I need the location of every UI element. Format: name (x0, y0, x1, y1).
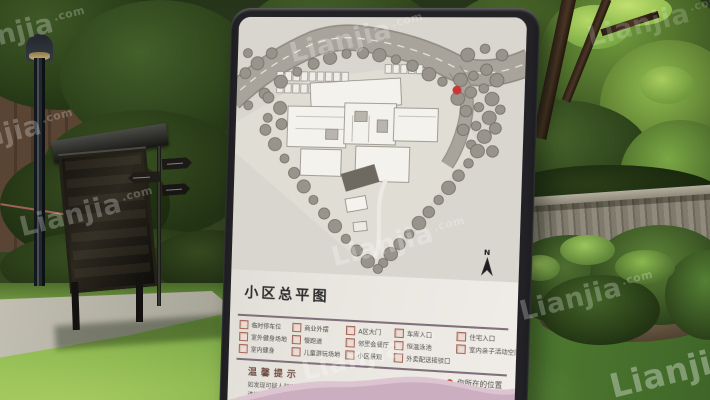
legend-swatch-icon (292, 323, 301, 333)
legend-item: 室内亲子活动空间 (456, 344, 521, 357)
legend-swatch-icon (239, 332, 248, 342)
legend-column: A区大门 邻里会餐厅 小区景观 (345, 326, 389, 362)
legend-item: 室外健身场地 (239, 332, 287, 344)
site-plan-map (231, 17, 527, 283)
legend-swatch-icon (394, 341, 404, 351)
legend-swatch-icon (456, 332, 466, 342)
legend-swatch-icon (394, 328, 404, 338)
signpost-pole (157, 146, 161, 306)
notice-board-leg (136, 276, 143, 322)
legend-item: 住宅入口 (456, 332, 521, 345)
legend-label: 恒温泳池 (407, 341, 432, 352)
legend-column: 住宅入口 室内亲子活动空间 (456, 332, 522, 370)
legend-label: 室内健身 (251, 345, 275, 355)
legend-label: 儿童游玩场地 (303, 348, 340, 359)
legend-label: 外卖配送接驳口 (406, 354, 451, 366)
legend-label: 临时停车位 (251, 320, 281, 331)
legend-swatch-icon (239, 320, 248, 330)
legend-label: 邻里会餐厅 (358, 339, 389, 350)
legend-item: 外卖配送接驳口 (394, 353, 451, 366)
legend-swatch-icon (346, 338, 356, 348)
legend-label: 车库入口 (407, 329, 432, 340)
sign-title: 小区总平图 (244, 282, 330, 306)
legend-item: 儿童游玩场地 (291, 347, 340, 359)
legend-column: 临时停车位 室外健身场地 室内健身 (239, 320, 288, 356)
signboard-face: 小区总平图 N 临时停车位 室外健身场地 室内健身 商业外摆 慢跑道 儿童游玩场… (227, 17, 527, 400)
legend-swatch-icon (394, 353, 404, 363)
legend-item: 临时停车位 (239, 320, 287, 332)
legend-column: 商业外摆 慢跑道 儿童游玩场地 (291, 323, 341, 359)
legend-item: 室内健身 (239, 344, 287, 356)
notice-board-panel (58, 146, 158, 293)
legend-label: 室外健身场地 (251, 333, 287, 344)
legend-swatch-icon (292, 335, 301, 345)
legend-label: 慢跑道 (304, 336, 323, 346)
legend-item: A区大门 (346, 326, 390, 338)
legend-item: 车库入口 (394, 328, 451, 340)
legend-label: A区大门 (358, 326, 381, 336)
legend-item: 邻里会餐厅 (346, 338, 390, 350)
legend-swatch-icon (239, 344, 248, 354)
legend-item: 慢跑道 (292, 335, 341, 347)
legend-column: 车库入口 恒温泳池 外卖配送接驳口 (394, 328, 452, 365)
legend-label: 室内亲子活动空间 (469, 345, 521, 357)
photo-scene: 小区总平图 N 临时停车位 室外健身场地 室内健身 商业外摆 慢跑道 儿童游玩场… (0, 0, 710, 400)
legend-item: 恒温泳池 (394, 341, 451, 354)
legend-label: 商业外摆 (304, 323, 329, 333)
legend-item: 小区景观 (345, 350, 389, 362)
north-arrow-icon (479, 257, 494, 277)
legend-swatch-icon (345, 350, 355, 360)
compass: N (478, 249, 496, 281)
legend-swatch-icon (456, 344, 466, 354)
legend-label: 住宅入口 (469, 332, 495, 343)
legend-swatch-icon (346, 326, 356, 336)
garden-lamp-pole (34, 58, 45, 286)
legend-item: 商业外摆 (292, 323, 341, 335)
legend-swatch-icon (291, 347, 300, 357)
legend-label: 小区景观 (357, 351, 382, 362)
community-map-signboard: 小区总平图 N 临时停车位 室外健身场地 室内健身 商业外摆 慢跑道 儿童游玩场… (219, 8, 540, 400)
